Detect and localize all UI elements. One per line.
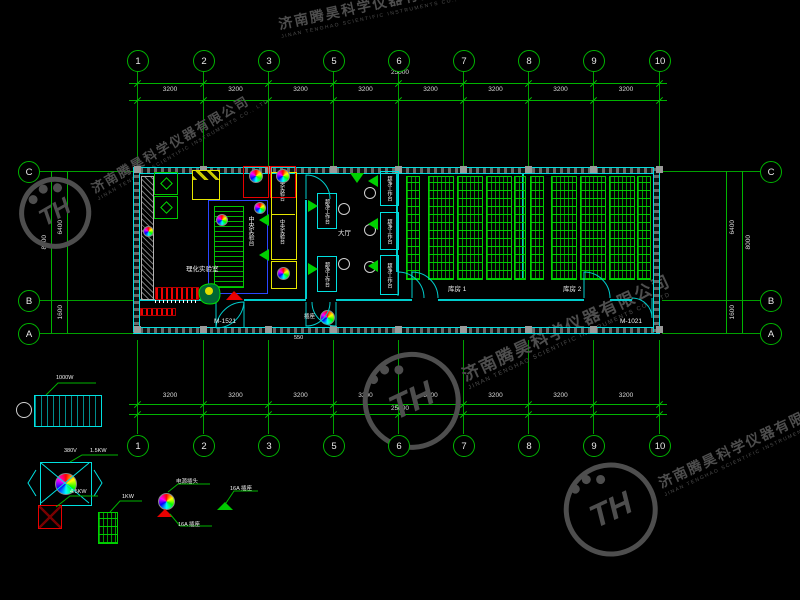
wall-column: [525, 326, 532, 333]
storage-rack: [514, 176, 526, 280]
axis-right-A: A: [760, 323, 782, 345]
bench-sphere: [277, 267, 290, 280]
bay-dim-bottom: 3200: [203, 392, 268, 400]
storage-rack: [486, 176, 512, 280]
axis-top-5: 6: [388, 50, 410, 72]
clean-bench: 超净工作台: [317, 193, 337, 229]
bench-sphere: [143, 226, 154, 237]
equipment-box: [154, 196, 178, 219]
entry-power-sphere: [320, 310, 335, 325]
stool: [364, 261, 376, 273]
legend-socket-green-icon: [217, 502, 233, 510]
axis-left-B: B: [18, 290, 40, 312]
axis-bottom-4: 5: [323, 435, 345, 457]
lamp-icon: [350, 173, 364, 183]
legend-socket-red-icon: [157, 509, 173, 517]
bay-dim-top: 3200: [398, 86, 463, 94]
storage-rack: [551, 176, 577, 280]
legend-rack-power: 1KW: [122, 494, 134, 500]
axis-top-1: 1: [127, 50, 149, 72]
legend-plug-socket-label: 16A 插座: [178, 520, 200, 528]
wall-lab-east: [305, 200, 307, 299]
axis-right-C: C: [760, 161, 782, 183]
axis-top-2: 2: [193, 50, 215, 72]
clean-bench: 超净工作台: [380, 212, 399, 250]
axis-bottom-6: 7: [453, 435, 475, 457]
bench-sphere: [216, 214, 228, 226]
wall-column: [200, 326, 207, 333]
stool: [338, 258, 350, 270]
legend-rack: [98, 512, 118, 544]
wall-column: [330, 326, 337, 333]
grid-line-vertical: [137, 340, 138, 434]
axis-bottom-1: 1: [127, 435, 149, 457]
stool: [364, 224, 376, 236]
grid-line: [39, 333, 133, 334]
wall-bench-west: [141, 176, 154, 300]
axis-bottom-9: 10: [649, 435, 671, 457]
dim-side-total-right: 8000: [745, 235, 752, 249]
grid-line: [662, 333, 760, 334]
wall-column: [590, 326, 597, 333]
door-label-left: M-1521: [214, 318, 236, 325]
bay-dim-bottom: 3200: [593, 392, 659, 400]
storage1-label: 库房 1: [448, 283, 466, 293]
wall-west: [133, 167, 140, 332]
storage-rack: [406, 176, 420, 280]
wall-column: [590, 166, 597, 173]
grid-line-vertical: [333, 340, 334, 434]
wall-column: [330, 166, 337, 173]
legend-uv-power-label: 1000W: [56, 375, 73, 381]
wall-inner-south: [336, 299, 412, 301]
grid-line: [662, 171, 760, 172]
watermark-en-text: JINAN TENGHAO SCIENTIFIC INSTRUMENTS CO.…: [467, 289, 676, 391]
axis-top-3: 3: [258, 50, 280, 72]
storage-rack: [637, 176, 651, 280]
axis-bottom-8: 9: [583, 435, 605, 457]
axis-bottom-2: 2: [193, 435, 215, 457]
stool: [338, 203, 350, 215]
grid-line-vertical: [659, 71, 660, 167]
side-bench-divider: [271, 214, 295, 215]
cad-floorplan-canvas: 济南腾昊科学仪器有限公司 JINAN TENGHAO SCIENTIFIC IN…: [0, 0, 800, 600]
wall-inner-south: [610, 299, 632, 301]
equipment-box: [154, 172, 178, 195]
storage-rack: [428, 176, 454, 280]
wall-column: [656, 326, 663, 333]
wall-column: [656, 166, 663, 173]
legend-lamp-circle: [16, 402, 32, 418]
axis-bottom-3: 3: [258, 435, 280, 457]
axis-top-9: 10: [649, 50, 671, 72]
bay-dim-top: 3200: [528, 86, 593, 94]
dim-side-lower-left: 1600: [57, 305, 64, 319]
leader: [110, 501, 142, 512]
wall-inner-south: [438, 299, 584, 301]
legend-socket-label: 16A 插座: [230, 484, 252, 492]
axis-bottom-5: 6: [388, 435, 410, 457]
wall-column: [460, 166, 467, 173]
legend-fan-voltage: 380V: [64, 448, 77, 454]
wall-east: [653, 167, 660, 332]
grid-line-vertical: [203, 340, 204, 434]
storage-rack: [580, 176, 606, 280]
grid-line-vertical: [659, 340, 660, 434]
dim-line: [742, 171, 743, 333]
south-bench: [155, 287, 199, 300]
distribution-strip: [140, 308, 176, 316]
legend-heater-power: 4.5KW: [70, 489, 87, 495]
instrument-sphere: [276, 169, 290, 183]
entry-socket-label: 插座: [304, 312, 315, 320]
storage-rack: [530, 176, 544, 280]
bay-dim-bottom: 3200: [137, 392, 203, 400]
bay-dim-top: 3200: [463, 86, 528, 94]
clean-bench: 超净工作台: [380, 255, 399, 295]
cone-icon: [368, 175, 378, 187]
clean-bench: 超净工作台: [317, 256, 337, 292]
leader: [226, 491, 258, 503]
axis-top-7: 8: [518, 50, 540, 72]
wall-column: [395, 326, 402, 333]
bay-dim-bottom: 3200: [268, 392, 333, 400]
axis-top-6: 7: [453, 50, 475, 72]
storage2-label: 库房 2: [563, 283, 581, 293]
legend-heater: [38, 505, 62, 529]
axis-top-8: 9: [583, 50, 605, 72]
leader: [46, 383, 96, 395]
hall-label: 大厅: [338, 227, 351, 237]
wall-column: [460, 326, 467, 333]
leader: [168, 484, 210, 492]
leader: [70, 455, 118, 462]
door-dim-label: 550: [294, 335, 303, 341]
dim-side-lower-right: 1600: [729, 305, 736, 319]
dim-side-upper-right: 6400: [729, 220, 736, 234]
wall-column: [265, 326, 272, 333]
grid-line-vertical: [268, 340, 269, 434]
axis-bottom-7: 8: [518, 435, 540, 457]
watermark-top-right: 济南腾昊科学仪器有限公司 JINAN TENGHAO SCIENTIFIC IN…: [277, 0, 475, 40]
axis-left-C: C: [18, 161, 40, 183]
dim-line: [726, 171, 727, 333]
fume-hood: [192, 170, 220, 200]
wall-inner-south: [244, 299, 306, 301]
bay-dim-top: 3200: [268, 86, 333, 94]
legend-fan-power: 1.5KW: [90, 448, 107, 454]
lab-room-label: 理化实验室: [186, 263, 219, 273]
axis-left-A: A: [18, 323, 40, 345]
bay-dim-top: 3200: [593, 86, 659, 94]
legend-uv-lamp: [34, 395, 102, 427]
bench-sphere: [254, 202, 266, 214]
bay-dim-top: 3200: [333, 86, 398, 94]
storage-rack: [457, 176, 483, 280]
watermark-logo: TH: [548, 447, 673, 572]
wall-column: [134, 326, 141, 333]
axis-right-B: B: [760, 290, 782, 312]
door-label-right: M-1021: [620, 318, 642, 325]
instrument-sphere: [249, 169, 263, 183]
legend-plug-label: 电源插头: [176, 477, 198, 485]
stool: [364, 187, 376, 199]
axis-top-4: 5: [323, 50, 345, 72]
clean-bench: 超净工作台: [380, 171, 399, 206]
south-bench-ticks: [155, 300, 197, 303]
side-bench-outline: [271, 172, 297, 260]
storage-rack: [609, 176, 635, 280]
grid-line: [39, 300, 133, 301]
wall-column: [134, 166, 141, 173]
legend-plug-sphere: [158, 493, 175, 510]
wall-column: [525, 166, 532, 173]
